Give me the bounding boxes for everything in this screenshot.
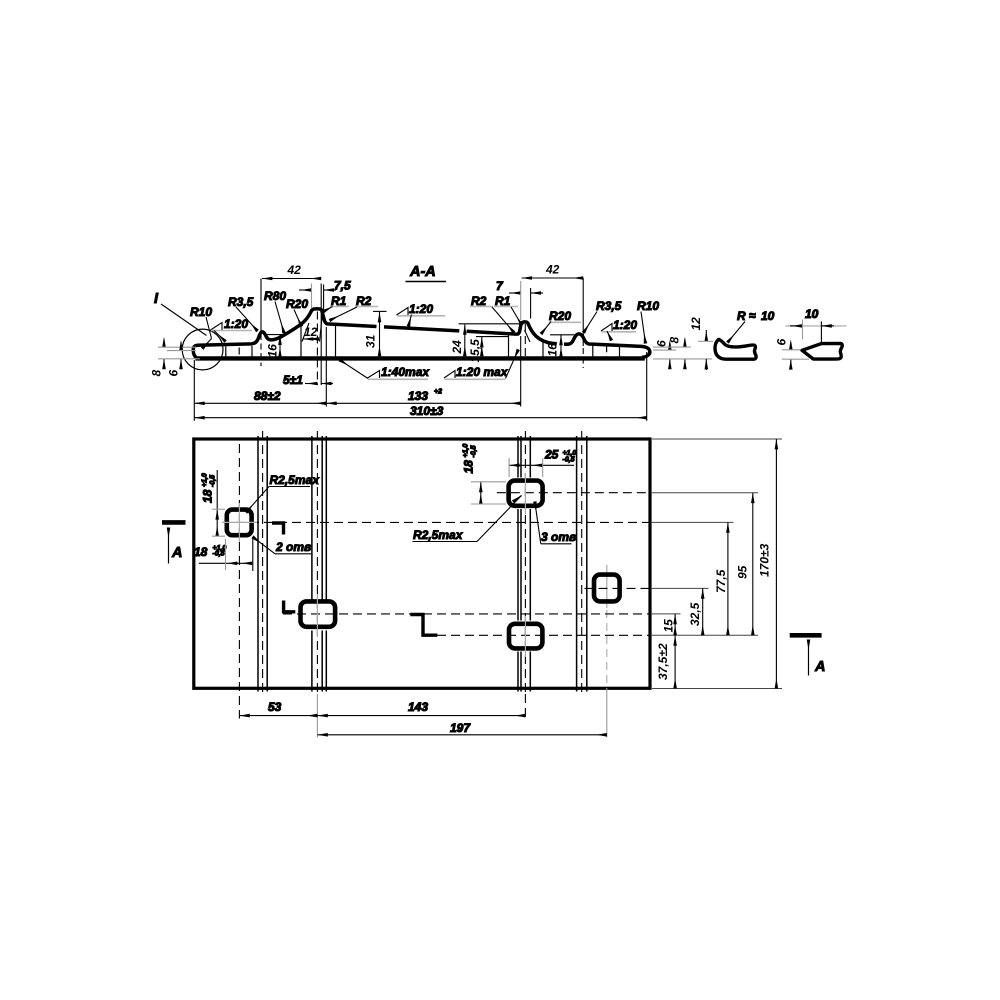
svg-text:170±3: 170±3 — [758, 543, 772, 577]
svg-text:6: 6 — [166, 370, 180, 377]
svg-text:R10: R10 — [637, 299, 659, 313]
svg-text:R10: R10 — [190, 305, 212, 319]
svg-text:53: 53 — [268, 700, 282, 714]
svg-text:R3,5: R3,5 — [228, 295, 254, 309]
svg-text:+1,0: +1,0 — [202, 473, 209, 487]
svg-text:8: 8 — [149, 370, 163, 377]
svg-text:133: 133 — [408, 389, 428, 403]
svg-text:15,5: 15,5 — [468, 339, 482, 363]
svg-text:16: 16 — [546, 343, 560, 357]
svg-text:R3,5: R3,5 — [596, 299, 622, 313]
svg-text:R2,5max: R2,5max — [413, 528, 464, 542]
svg-text:88±2: 88±2 — [254, 389, 281, 403]
svg-text:12: 12 — [689, 317, 703, 331]
svg-text:42: 42 — [545, 263, 560, 277]
svg-text:16: 16 — [266, 344, 280, 358]
svg-text:3 отв: 3 отв — [541, 530, 576, 544]
svg-text:1:40max: 1:40max — [381, 365, 430, 379]
svg-text:+1,0: +1,0 — [463, 444, 470, 458]
svg-text:1:20: 1:20 — [613, 318, 637, 332]
svg-text:10: 10 — [761, 309, 775, 323]
svg-text:24: 24 — [450, 340, 464, 355]
svg-text:R: R — [737, 309, 746, 323]
svg-text:18: 18 — [194, 545, 208, 559]
svg-text:42: 42 — [287, 263, 302, 277]
svg-text:7,5: 7,5 — [334, 279, 351, 293]
svg-text:R20: R20 — [286, 297, 308, 311]
svg-text:1:20: 1:20 — [409, 302, 433, 316]
svg-text:6: 6 — [655, 340, 669, 347]
svg-text:R2,5max: R2,5max — [270, 473, 321, 487]
svg-text:A-A: A-A — [409, 264, 436, 280]
svg-text:+2: +2 — [434, 389, 442, 396]
svg-text:6: 6 — [775, 339, 789, 346]
svg-text:A: A — [171, 545, 182, 561]
svg-text:18: 18 — [462, 460, 476, 474]
svg-text:-0,5: -0,5 — [213, 551, 225, 558]
svg-text:143: 143 — [408, 700, 428, 714]
svg-text:A: A — [814, 659, 825, 675]
svg-text:10: 10 — [805, 307, 819, 321]
svg-text:5±1: 5±1 — [283, 373, 303, 387]
svg-text:-0,5: -0,5 — [210, 475, 217, 487]
svg-text:1:20 max: 1:20 max — [456, 365, 509, 379]
svg-text:37,5±2: 37,5±2 — [656, 643, 670, 680]
svg-text:R80: R80 — [264, 289, 286, 303]
svg-text:95: 95 — [736, 565, 750, 579]
svg-text:25: 25 — [544, 448, 559, 462]
svg-text:-0,5: -0,5 — [471, 445, 478, 457]
svg-text:31: 31 — [364, 334, 378, 348]
svg-text:77,5: 77,5 — [714, 569, 728, 593]
svg-text:18: 18 — [201, 489, 215, 503]
svg-text:-0,5: -0,5 — [563, 457, 575, 464]
svg-text:15: 15 — [662, 619, 676, 633]
svg-text:1:20: 1:20 — [224, 317, 248, 331]
svg-text:≈: ≈ — [749, 309, 756, 323]
svg-text:R20: R20 — [549, 309, 571, 323]
svg-text:310±3: 310±3 — [410, 404, 444, 418]
svg-text:8: 8 — [668, 337, 682, 344]
svg-text:197: 197 — [450, 721, 471, 735]
svg-text:32,5: 32,5 — [688, 602, 702, 626]
svg-text:2 отв: 2 отв — [275, 540, 311, 554]
